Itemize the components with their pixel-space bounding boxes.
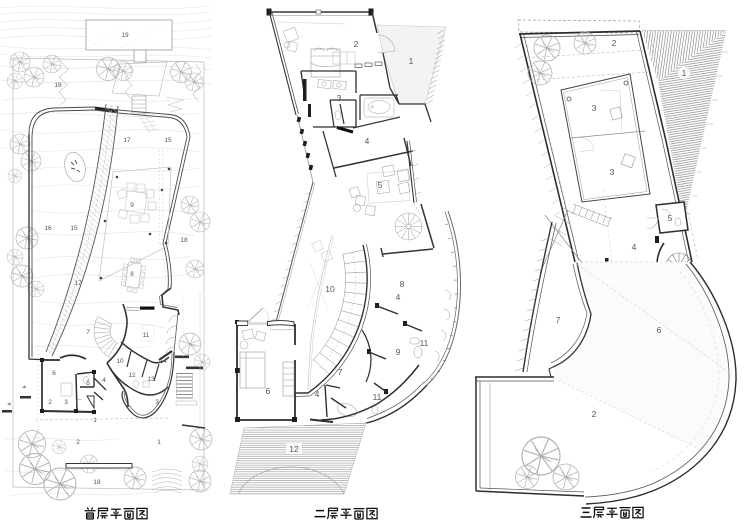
svg-text:12: 12 [128, 372, 136, 379]
svg-text:4: 4 [315, 389, 320, 399]
svg-text:6: 6 [657, 325, 662, 335]
svg-text:3: 3 [64, 399, 68, 406]
svg-text:4: 4 [396, 292, 401, 302]
svg-text:2: 2 [592, 409, 597, 419]
svg-text:11: 11 [373, 392, 382, 402]
svg-text:7: 7 [556, 315, 561, 325]
svg-text:11: 11 [143, 332, 150, 339]
svg-text:3: 3 [610, 167, 615, 177]
svg-text:13: 13 [147, 376, 155, 383]
svg-text:15: 15 [70, 225, 78, 232]
svg-text:2: 2 [612, 38, 617, 48]
svg-text:2: 2 [76, 439, 80, 446]
svg-text:1: 1 [682, 68, 687, 78]
svg-text:7: 7 [86, 329, 90, 336]
svg-text:9: 9 [130, 202, 134, 209]
svg-text:9: 9 [396, 347, 401, 357]
svg-text:10: 10 [325, 284, 335, 294]
svg-text:15: 15 [164, 137, 172, 144]
svg-text:12: 12 [289, 444, 299, 454]
svg-text:14: 14 [159, 358, 167, 365]
svg-text:4: 4 [365, 136, 370, 146]
svg-text:5: 5 [378, 180, 383, 190]
svg-text:2: 2 [48, 399, 52, 406]
svg-text:3: 3 [337, 93, 342, 103]
svg-text:4: 4 [632, 242, 637, 252]
svg-text:11: 11 [420, 338, 429, 348]
svg-text:7: 7 [338, 367, 343, 377]
svg-text:1: 1 [409, 56, 414, 66]
svg-text:4: 4 [102, 377, 106, 384]
svg-text:6: 6 [266, 386, 271, 396]
svg-text:5: 5 [86, 380, 90, 387]
svg-text:17: 17 [74, 280, 82, 287]
svg-text:17: 17 [123, 137, 131, 144]
svg-text:2: 2 [354, 39, 359, 49]
svg-text:1: 1 [93, 417, 97, 424]
svg-text:18: 18 [93, 479, 101, 486]
svg-text:18: 18 [54, 82, 62, 89]
svg-text:3: 3 [155, 399, 159, 406]
svg-text:19: 19 [121, 32, 129, 39]
svg-text:8: 8 [400, 279, 405, 289]
svg-text:16: 16 [44, 225, 52, 232]
svg-text:1: 1 [157, 439, 161, 446]
svg-text:5: 5 [668, 213, 673, 223]
svg-text:3: 3 [592, 103, 597, 113]
svg-text:8: 8 [130, 271, 134, 278]
svg-text:10: 10 [116, 358, 124, 365]
svg-text:6: 6 [52, 370, 56, 377]
svg-text:18: 18 [180, 237, 188, 244]
